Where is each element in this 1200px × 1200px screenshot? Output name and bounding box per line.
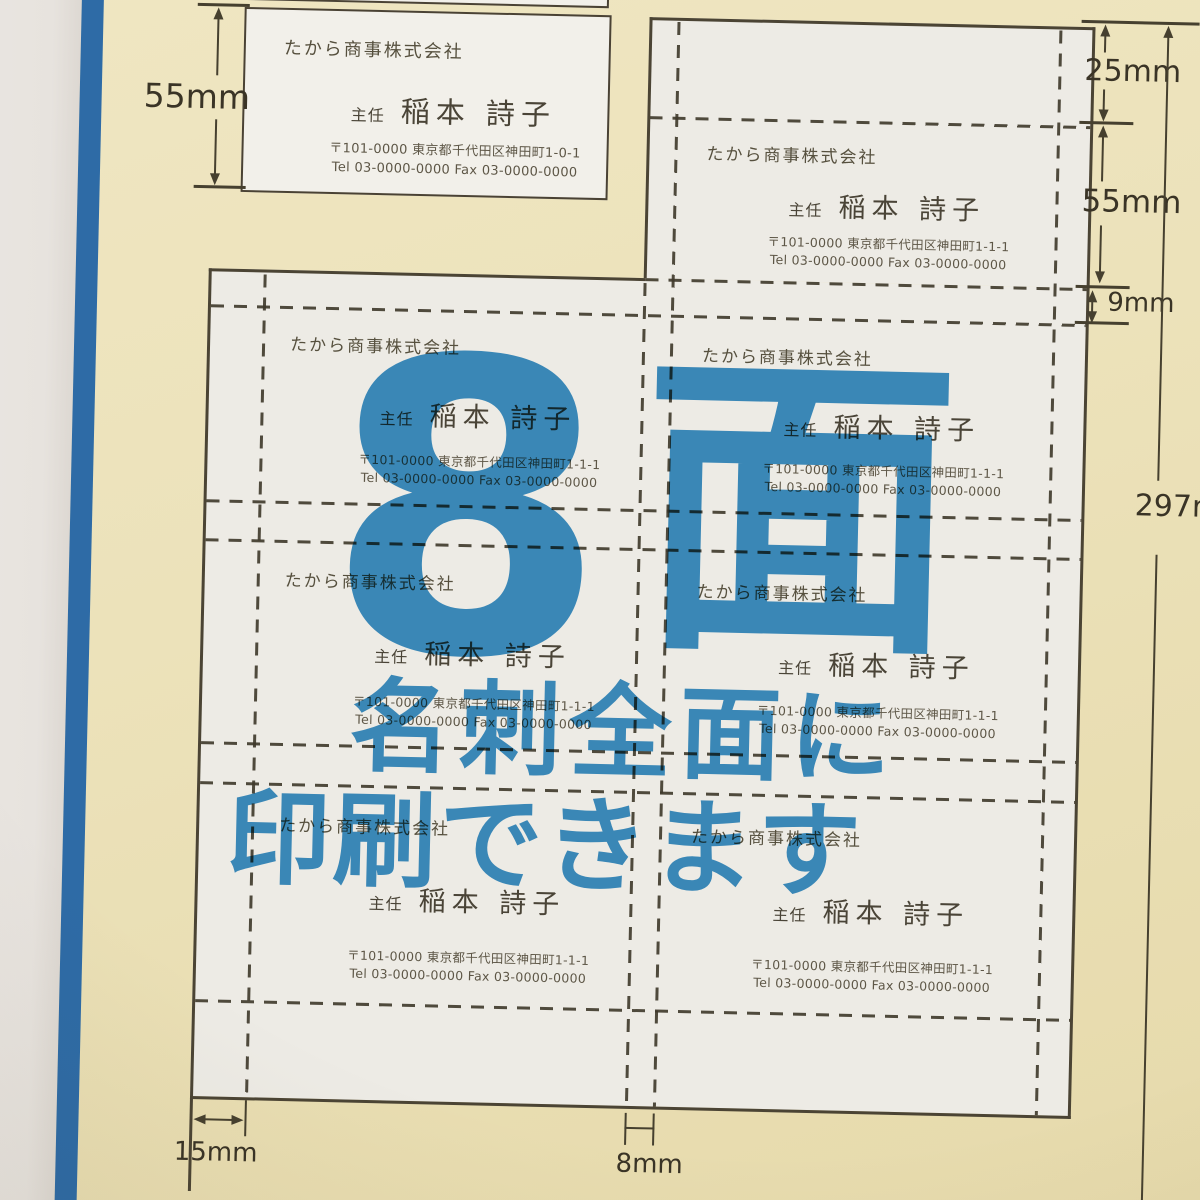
photo-scene: たから商事株式会社 主任 稲本 詩子 〒101-0000 東京都千代田区神田町1…	[0, 0, 1200, 1200]
person-name: 稲本 詩子	[400, 89, 556, 135]
arrow-down-icon	[1095, 271, 1105, 283]
package-photo-frame: たから商事株式会社 主任 稲本 詩子 〒101-0000 東京都千代田区神田町1…	[0, 0, 1200, 1200]
address-block: 〒101-0000 東京都千代田区神田町1-0-1 Tel 03-0000-00…	[243, 138, 607, 184]
name-line: 主任 稲本 詩子	[673, 182, 1046, 229]
person-name: 稲本 詩子	[838, 185, 985, 227]
overlay-line-insatsu-dekimasu: 印刷できます	[226, 786, 864, 904]
overlay-big-men: 面	[637, 353, 962, 669]
overlay-big-8: 8	[323, 342, 612, 680]
company-name: たから商事株式会社	[706, 139, 1046, 172]
dimension-label-55mm-right: 55mm	[1081, 183, 1182, 221]
dimension-label-55mm-left: 55mm	[143, 76, 250, 117]
arrow-down-icon	[1098, 109, 1108, 121]
dim-line	[1104, 34, 1106, 52]
address-block: 〒101-0000 東京都千代田区神田町1-1-1 Tel 03-0000-00…	[248, 944, 629, 989]
dimension-label-15mm: 15mm	[173, 1137, 257, 1169]
sample-business-card: たから商事株式会社 主任 稲本 詩子 〒101-0000 東京都千代田区神田町1…	[241, 7, 612, 200]
name-line: 主任 稲本 詩子	[244, 85, 608, 135]
dimension-label-297mm: 297mm	[1134, 488, 1200, 526]
dimension-label-9mm: 9mm	[1107, 288, 1175, 320]
arrow-down-icon	[210, 173, 220, 185]
job-title: 主任	[350, 101, 385, 126]
dimension-label-8mm: 8mm	[615, 1149, 683, 1181]
arrow-right-icon	[231, 1115, 243, 1125]
address-block: 〒101-0000 東京都千代田区神田町1-1-1 Tel 03-0000-00…	[672, 230, 1045, 275]
overlay-line-meishi-zenmen-ni: 名刺全面に	[348, 677, 900, 791]
sheet-card-row1-right: たから商事株式会社 主任 稲本 詩子 〒101-0000 東京都千代田区神田町1…	[672, 117, 1048, 287]
company-name: たから商事株式会社	[284, 34, 610, 67]
address-block: 〒101-0000 東京都千代田区神田町1-1-1 Tel 03-0000-00…	[656, 953, 1029, 998]
job-title: 主任	[788, 196, 823, 221]
